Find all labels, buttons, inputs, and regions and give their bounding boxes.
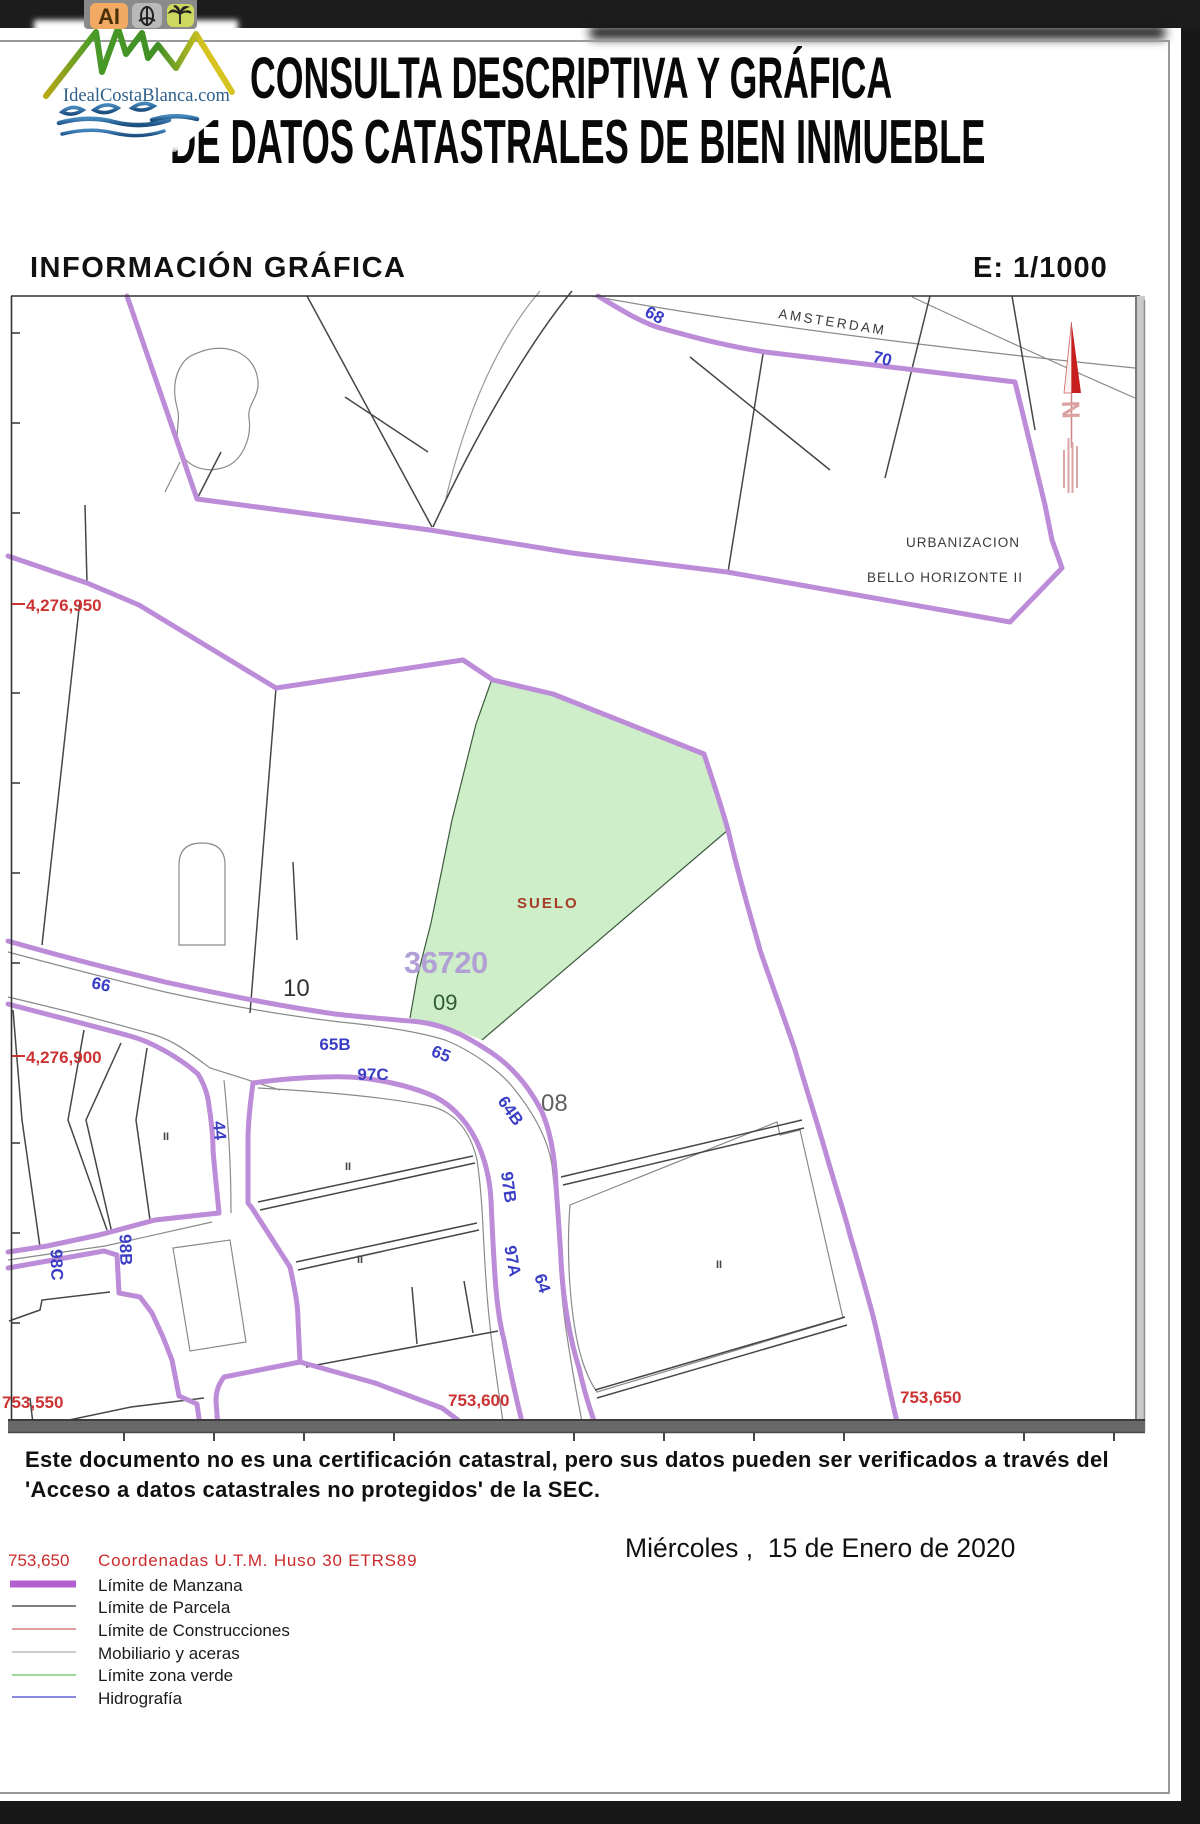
svg-text:753,650: 753,650 [900, 1388, 961, 1407]
svg-text:4,276,900: 4,276,900 [26, 1048, 102, 1067]
svg-text:BELLO HORIZONTE II: BELLO HORIZONTE II [867, 570, 1023, 585]
svg-text:N: N [1056, 400, 1085, 419]
svg-text:08: 08 [541, 1090, 568, 1117]
svg-text:II: II [357, 1254, 363, 1266]
svg-text:753,600: 753,600 [448, 1391, 509, 1410]
svg-text:II: II [716, 1259, 722, 1271]
svg-text:65: 65 [429, 1042, 454, 1067]
svg-text:II: II [163, 1131, 169, 1143]
svg-text:4,276,950: 4,276,950 [26, 596, 102, 615]
svg-text:97B: 97B [497, 1170, 520, 1204]
svg-text:SUELO: SUELO [517, 895, 579, 912]
svg-text:URBANIZACION: URBANIZACION [906, 535, 1020, 550]
svg-text:753,550: 753,550 [2, 1393, 63, 1412]
svg-text:65B: 65B [319, 1035, 350, 1054]
svg-text:II: II [345, 1161, 351, 1173]
svg-text:36720: 36720 [404, 945, 488, 980]
svg-text:97C: 97C [357, 1065, 388, 1084]
svg-text:66: 66 [90, 973, 112, 996]
svg-text:64: 64 [530, 1271, 554, 1295]
svg-text:98C: 98C [46, 1249, 66, 1281]
svg-text:10: 10 [283, 975, 310, 1002]
svg-text:09: 09 [433, 990, 457, 1015]
svg-text:44: 44 [209, 1120, 230, 1141]
svg-text:64B: 64B [494, 1093, 527, 1129]
svg-text:97A: 97A [500, 1244, 524, 1278]
svg-text:98B: 98B [115, 1234, 135, 1266]
